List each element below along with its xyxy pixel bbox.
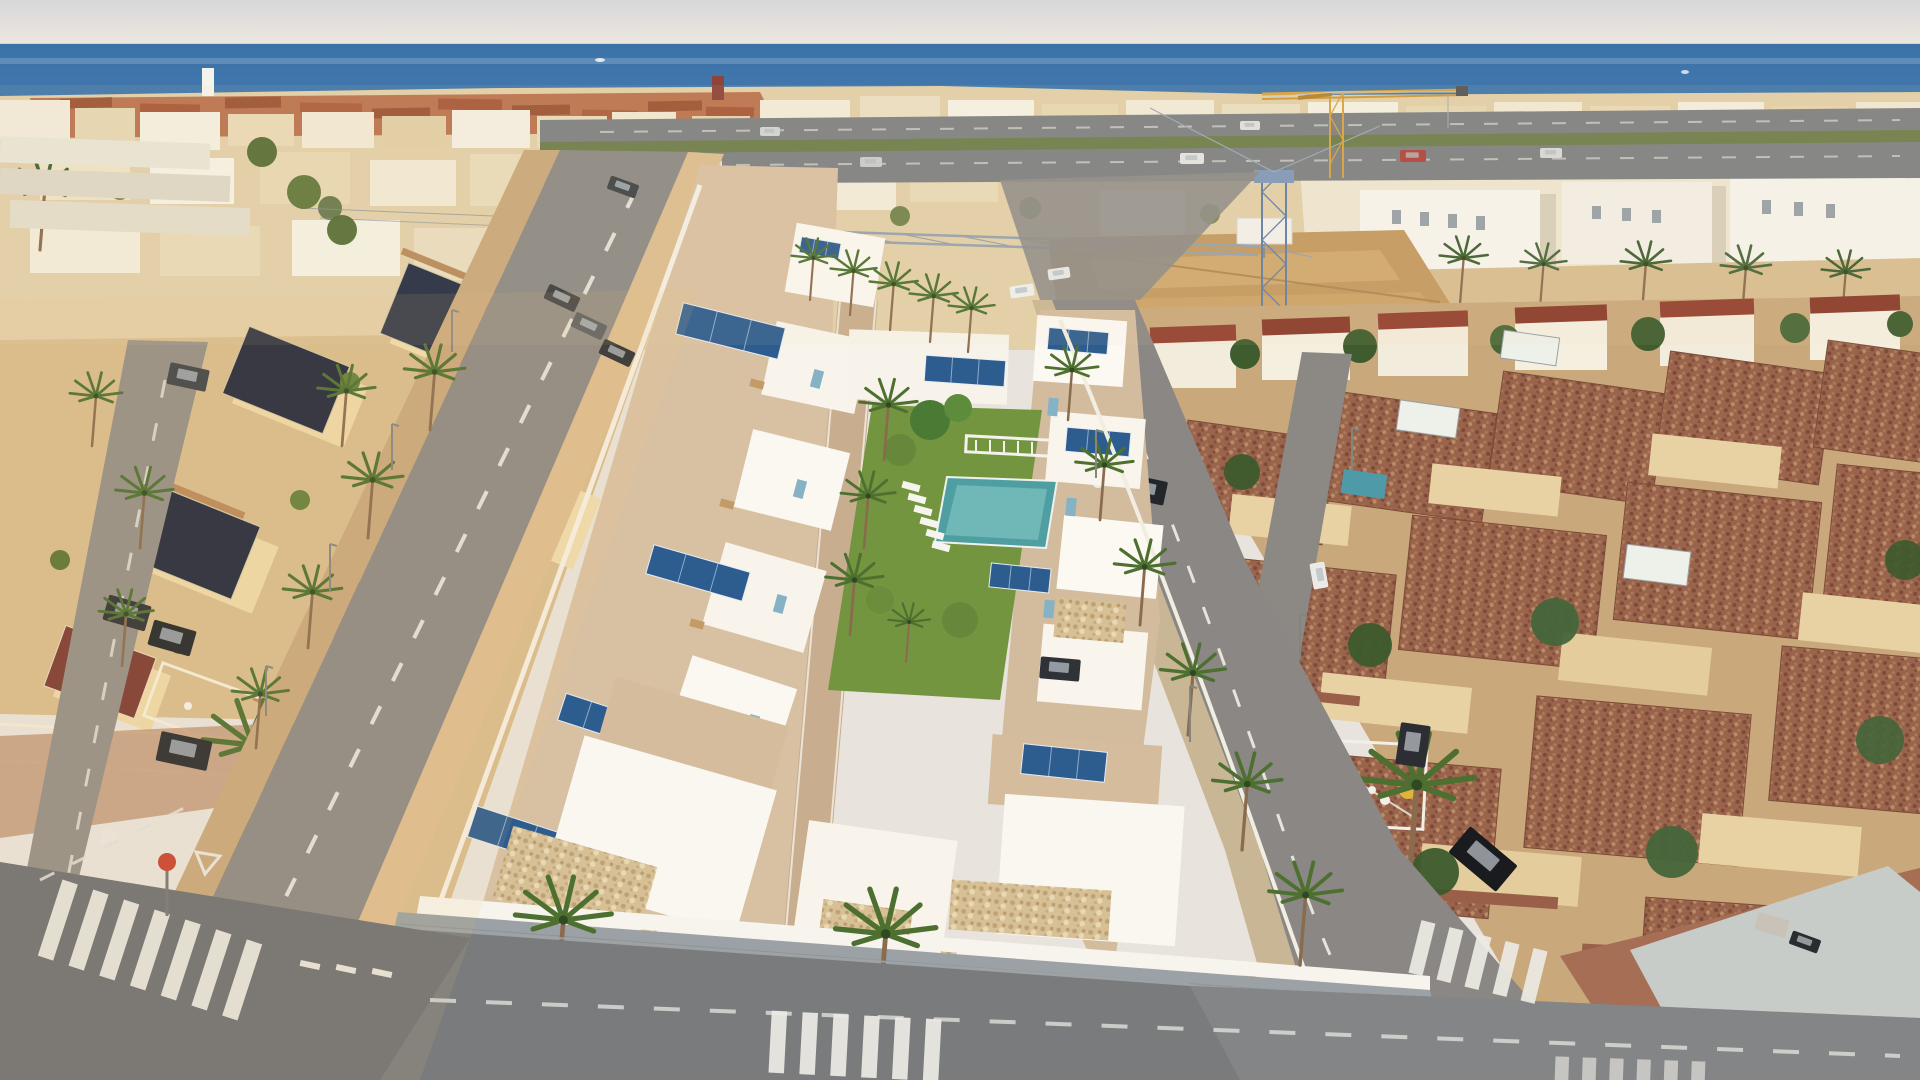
teal-glass-panel	[1047, 398, 1059, 417]
haze	[0, 85, 1920, 345]
shape	[942, 602, 978, 638]
shape	[866, 586, 894, 614]
terracotta-roof	[1824, 464, 1920, 612]
parked-car	[1039, 656, 1081, 681]
aerial-photo-stage	[0, 0, 1920, 1080]
aerial-development-photo	[0, 0, 1920, 1080]
sea-light-band	[0, 58, 1920, 64]
tree	[1348, 623, 1392, 667]
stone-clad-wall	[1053, 597, 1126, 643]
tree	[1224, 454, 1260, 490]
parked-car	[1395, 722, 1431, 768]
tree	[1856, 716, 1904, 764]
tree	[1531, 598, 1579, 646]
banana-plants	[910, 400, 950, 440]
teal-glass-panel	[1043, 600, 1055, 619]
sky	[0, 0, 1920, 50]
terracotta-roof	[1813, 340, 1920, 468]
white-sunroom	[1623, 544, 1691, 586]
sky	[0, 0, 1920, 50]
solar-panel	[924, 355, 1006, 387]
pool-water-light	[945, 485, 1047, 540]
boat	[595, 58, 605, 62]
boat	[1681, 70, 1689, 74]
teal-glass-panel	[1065, 498, 1077, 517]
banana-plants	[944, 394, 972, 422]
tree	[1646, 826, 1698, 878]
shape	[884, 434, 916, 466]
